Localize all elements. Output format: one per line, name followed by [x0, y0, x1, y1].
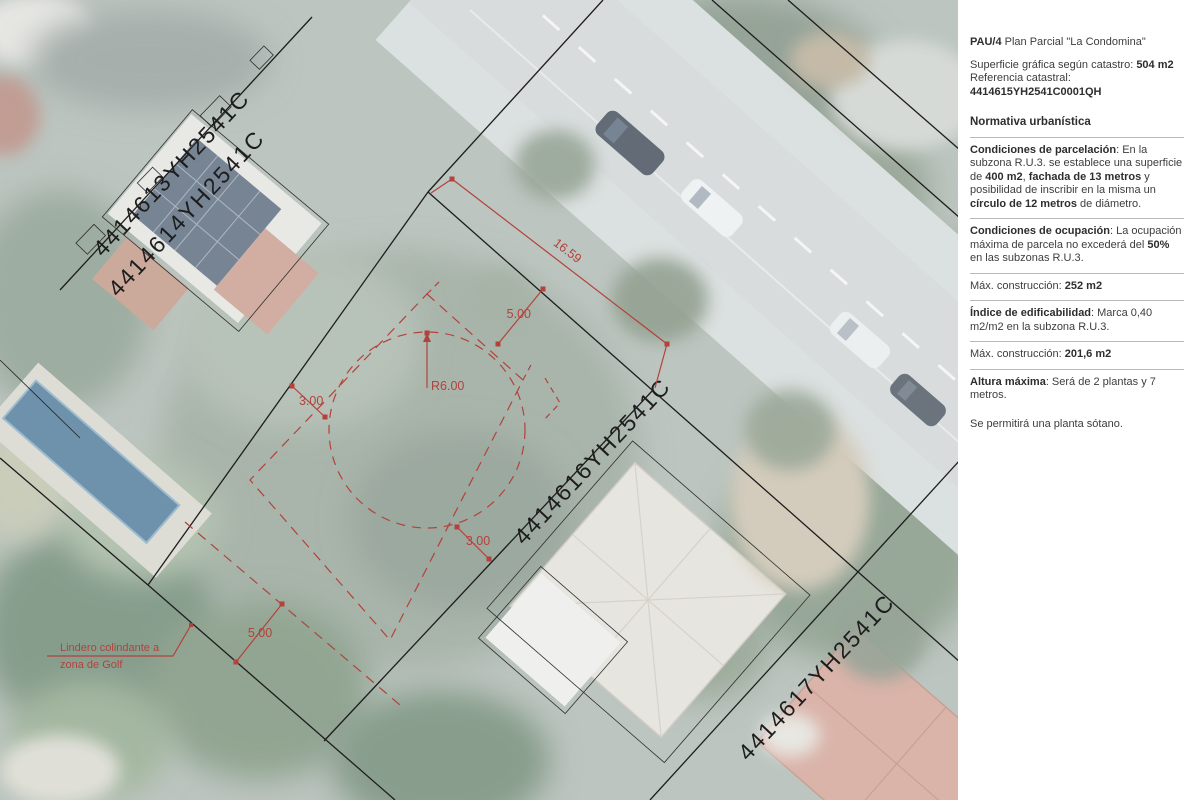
dimension-label-side-left: 3.00: [299, 394, 323, 408]
normativa-text: en las subzonas R.U.3.: [970, 252, 1084, 264]
section-divider: [970, 300, 1184, 301]
section-divider: [970, 369, 1184, 370]
normativa-text-bold: Condiciones de parcelación: [970, 144, 1116, 156]
aerial-photo-svg: 4414613YH2541C 4414614YH2541C 4414616YH2…: [0, 0, 958, 800]
plan-document: 4414613YH2541C 4414614YH2541C 4414616YH2…: [0, 0, 1200, 800]
dimension-label-front-setback: 5.00: [507, 307, 531, 321]
normativa-text-bold: 50%: [1147, 239, 1169, 251]
plan-name: Plan Parcial "La Condomina": [1002, 36, 1146, 48]
plan-title: PAU/4 Plan Parcial "La Condomina": [970, 36, 1184, 50]
normativa-text-bold: Altura máxima: [970, 376, 1046, 388]
superficie-value: 504 m2: [1136, 59, 1173, 71]
normativa-text: Se permitirá una planta sótano.: [970, 418, 1123, 430]
section-divider: [970, 273, 1184, 274]
info-panel: PAU/4 Plan Parcial "La Condomina" Superf…: [958, 0, 1200, 800]
normativa-text: Máx. construcción:: [970, 348, 1065, 360]
normativa-paragraph: Altura máxima: Será de 2 plantas y 7 met…: [970, 376, 1184, 403]
section-divider: [970, 218, 1184, 219]
normativa-text: Máx. construcción:: [970, 280, 1065, 292]
dimension-label-rear-setback: 5.00: [248, 626, 272, 640]
normativa-text-bold: 201,6 m2: [1065, 348, 1111, 360]
cadastral-map: 4414613YH2541C 4414614YH2541C 4414616YH2…: [0, 0, 958, 800]
referencia-label: Referencia catastral:: [970, 72, 1071, 84]
referencia-value: 4414615YH2541C0001QH: [970, 86, 1102, 98]
plan-code: PAU/4: [970, 36, 1002, 48]
section-divider: [970, 137, 1184, 138]
normativa-text-bold: círculo de 12 metros: [970, 198, 1077, 210]
golf-boundary-note-line2: zona de Golf: [60, 659, 123, 671]
normativa-paragraph: Condiciones de ocupación: La ocupación m…: [970, 225, 1184, 266]
normativa-paragraph: Se permitirá una planta sótano.: [970, 418, 1184, 432]
normativa-text-bold: fachada de 13 metros: [1029, 171, 1142, 183]
normativa-text-bold: 252 m2: [1065, 280, 1102, 292]
normativa-paragraph: Índice de edificabilidad: Marca 0,40 m2/…: [970, 307, 1184, 334]
normativa-paragraph: Máx. construcción: 201,6 m2: [970, 348, 1184, 362]
normativa-paragraph: Condiciones de parcelación: En la subzon…: [970, 144, 1184, 212]
superficie-label: Superficie gráfica según catastro:: [970, 59, 1136, 71]
golf-boundary-note-line1: Lindero colindante a: [60, 642, 160, 654]
dimension-label-side-bottom: 3.00: [466, 534, 490, 548]
normativa-text-bold: Condiciones de ocupación: [970, 225, 1110, 237]
cadastral-meta: Superficie gráfica según catastro: 504 m…: [970, 59, 1184, 100]
dimension-label-radius: R6.00: [431, 379, 464, 393]
normativa-sections: Condiciones de parcelación: En la subzon…: [970, 137, 1184, 432]
normativa-text-bold: 400 m2: [985, 171, 1022, 183]
normativa-heading: Normativa urbanística: [970, 116, 1184, 130]
normativa-text: de diámetro.: [1077, 198, 1141, 210]
normativa-text-bold: Índice de edificabilidad: [970, 307, 1091, 319]
normativa-paragraph: Máx. construcción: 252 m2: [970, 280, 1184, 294]
section-divider: [970, 341, 1184, 342]
